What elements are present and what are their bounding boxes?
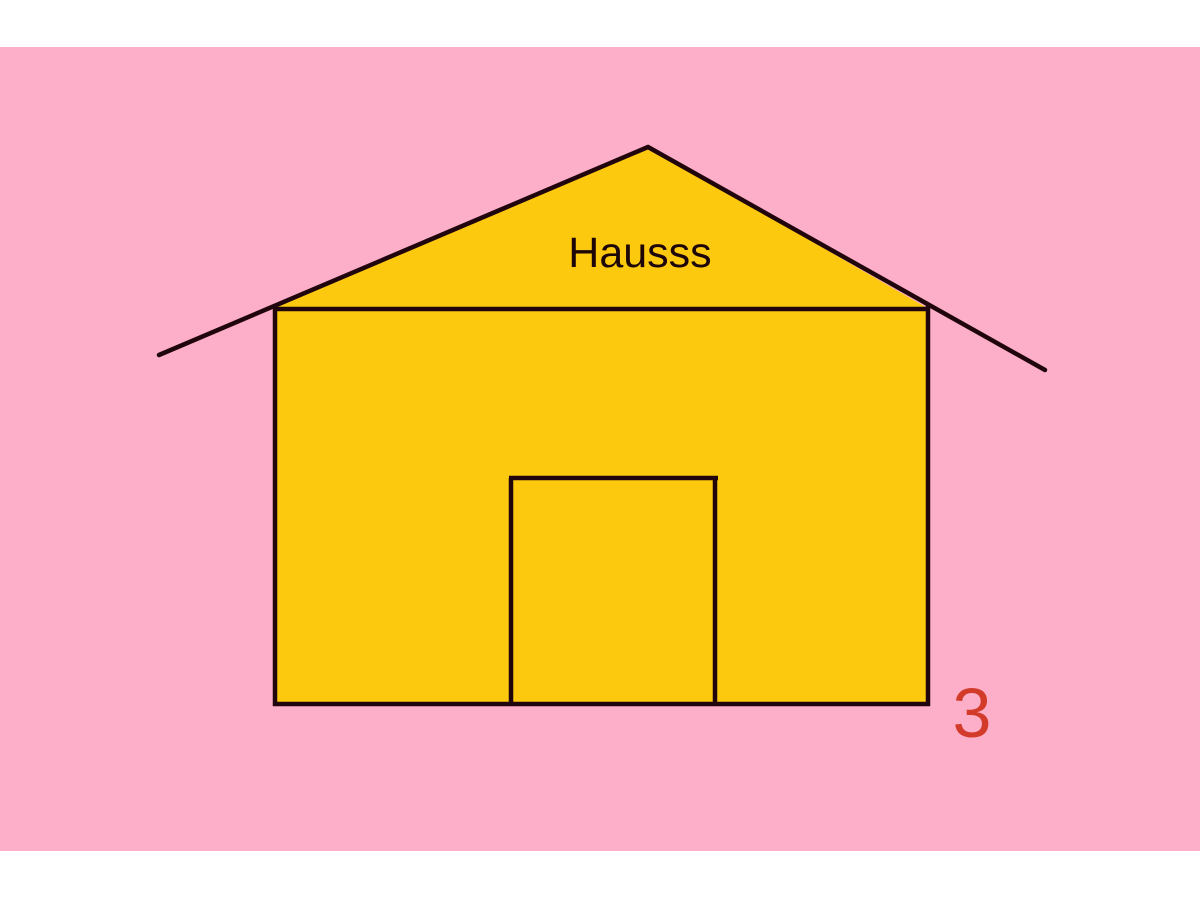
svg-text:Hausss: Hausss bbox=[568, 229, 711, 277]
svg-text:3: 3 bbox=[953, 674, 992, 752]
